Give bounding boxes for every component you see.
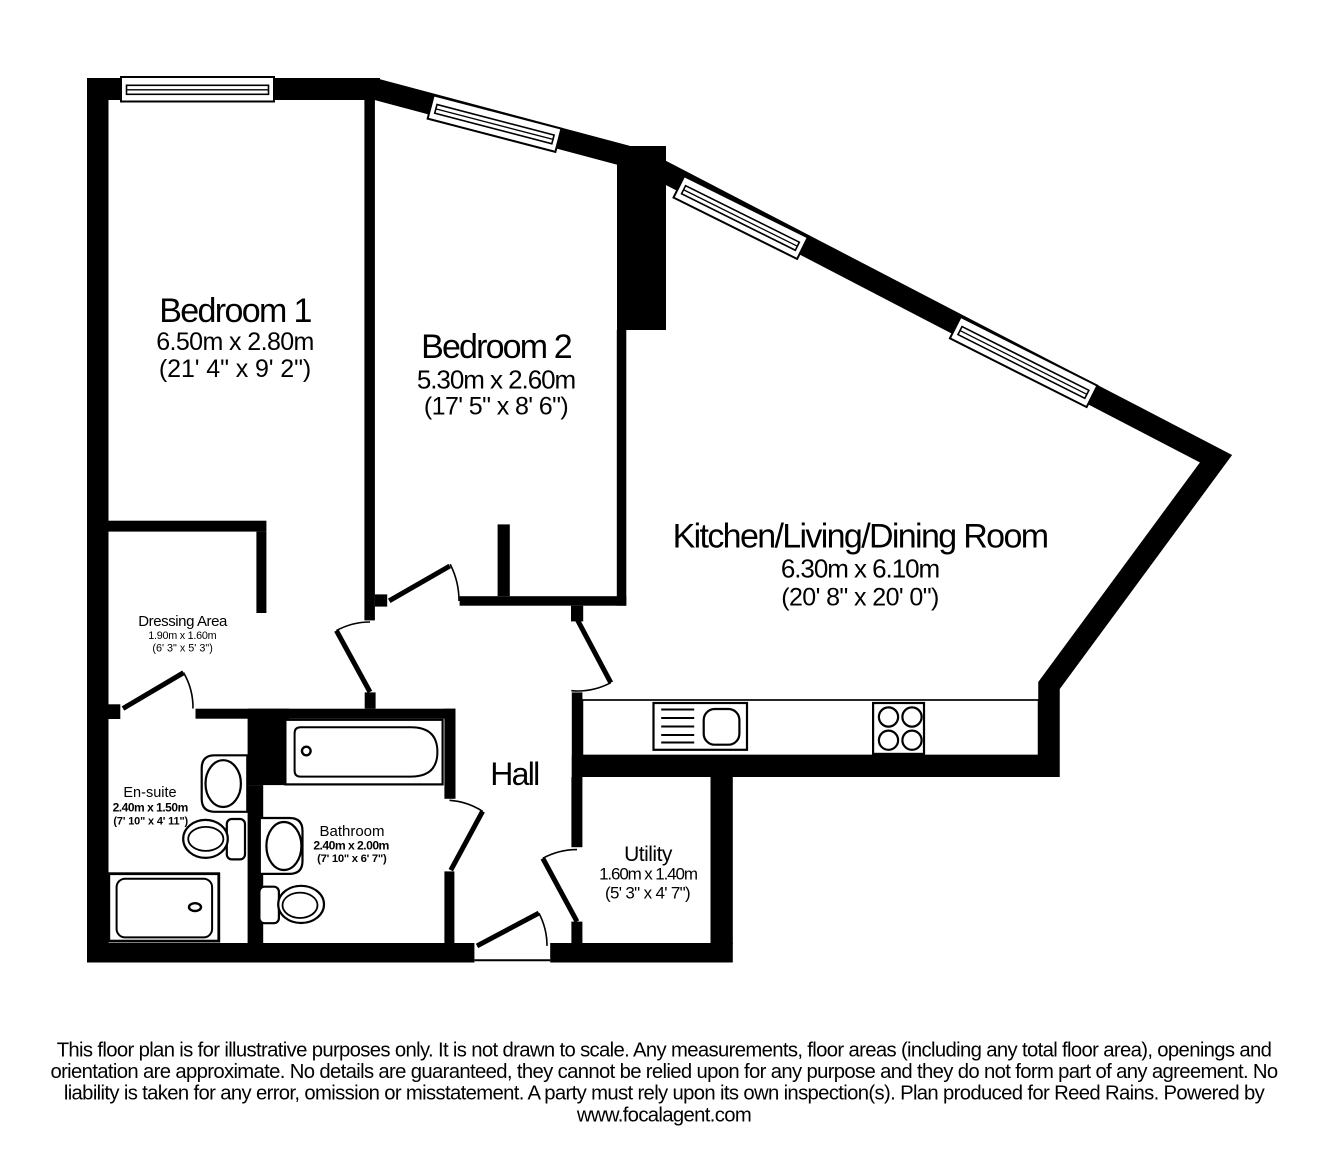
svg-text:liability is taken for any err: liability is taken for any error, omissi… (64, 1083, 1266, 1105)
svg-text:6.30m x 6.10m: 6.30m x 6.10m (781, 554, 939, 584)
svg-text:orientation are approximate. N: orientation are approximate. No details … (50, 1061, 1277, 1083)
svg-text:Utility: Utility (624, 843, 673, 866)
svg-text:2.40m x 1.50m: 2.40m x 1.50m (113, 801, 188, 815)
svg-text:En-suite: En-suite (123, 785, 176, 801)
svg-text:Bedroom 2: Bedroom 2 (421, 328, 572, 366)
svg-text:(17' 5" x 8' 6"): (17' 5" x 8' 6") (424, 393, 568, 421)
svg-text:1.60m x 1.40m: 1.60m x 1.40m (599, 865, 698, 884)
svg-text:Bedroom 1: Bedroom 1 (159, 292, 311, 330)
svg-text:www.focalagent.com: www.focalagent.com (576, 1104, 751, 1126)
svg-text:(7' 10" x 6' 7"): (7' 10" x 6' 7") (317, 853, 387, 865)
svg-text:Hall: Hall (490, 756, 538, 792)
svg-text:2.40m x 2.00m: 2.40m x 2.00m (313, 838, 389, 852)
svg-text:(20' 8" x 20' 0"): (20' 8" x 20' 0") (781, 584, 938, 612)
svg-text:Kitchen/Living/Dining Room: Kitchen/Living/Dining Room (673, 518, 1048, 556)
svg-text:(6' 3" x 5' 3"): (6' 3" x 5' 3") (152, 643, 212, 655)
svg-text:(7' 10" x 4' 11"): (7' 10" x 4' 11") (113, 816, 188, 828)
svg-text:(5' 3" x 4' 7"): (5' 3" x 4' 7") (605, 884, 690, 903)
svg-text:5.30m x 2.60m: 5.30m x 2.60m (417, 365, 575, 395)
svg-text:This floor plan is for illustr: This floor plan is for illustrative purp… (57, 1039, 1272, 1061)
svg-text:1.90m x 1.60m: 1.90m x 1.60m (148, 630, 216, 642)
svg-text:6.50m x 2.80m: 6.50m x 2.80m (156, 328, 314, 356)
svg-text:(21' 4" x 9' 2"): (21' 4" x 9' 2") (159, 355, 311, 383)
svg-text:Dressing Area: Dressing Area (138, 613, 228, 630)
